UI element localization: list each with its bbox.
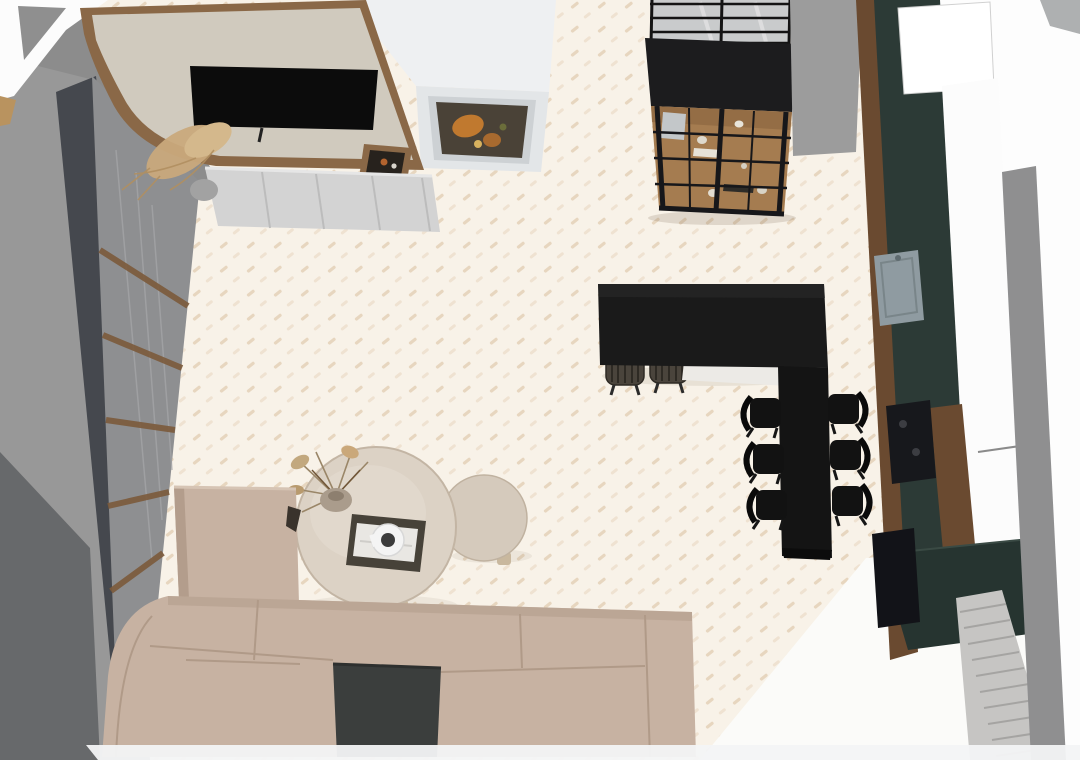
ring-sculpture-center [381,533,395,547]
cabinet-dot [741,163,747,169]
sink-faucet [895,255,901,261]
sink[interactable] [874,250,924,326]
oven[interactable] [872,528,920,628]
tv-screen[interactable] [190,66,378,130]
cooktop-burner [899,420,907,428]
island-top-sheen [598,284,825,298]
art-canvas [436,102,528,158]
glass-partition [650,0,792,44]
coffee-table-tray[interactable] [346,514,426,572]
cabinet-glass-reflection [661,112,686,140]
sofa-tray-insert[interactable] [333,664,441,757]
tray-item-dot2 [391,163,396,168]
vase-mouth [328,491,344,501]
glass-display-cabinet[interactable] [645,38,801,225]
dining-table[interactable] [778,366,832,558]
cooktop-surface [886,400,936,484]
art-gold-dot [474,140,482,148]
console-shelf[interactable] [205,168,440,232]
framed-artwork[interactable] [428,96,536,164]
art-orange-bloom-small [483,133,501,147]
floorplan-render [0,0,1080,760]
dining-table-end [782,548,832,560]
kitchen-back-wall [790,0,862,156]
counter-white-section [898,2,994,94]
art-leaf-dot [500,124,507,131]
cabinet-dish-2 [697,136,707,144]
bottom-wall-strip [86,745,1080,760]
plant-vase [190,179,218,201]
tray-item-dot [381,159,388,166]
cabinet-top [645,38,801,112]
floorplan-viewport [0,0,1080,760]
cabinet-dish [735,121,744,128]
cooktop-burner-2 [912,448,920,456]
cooktop[interactable] [886,400,936,484]
chaise-top-edge [174,487,296,489]
